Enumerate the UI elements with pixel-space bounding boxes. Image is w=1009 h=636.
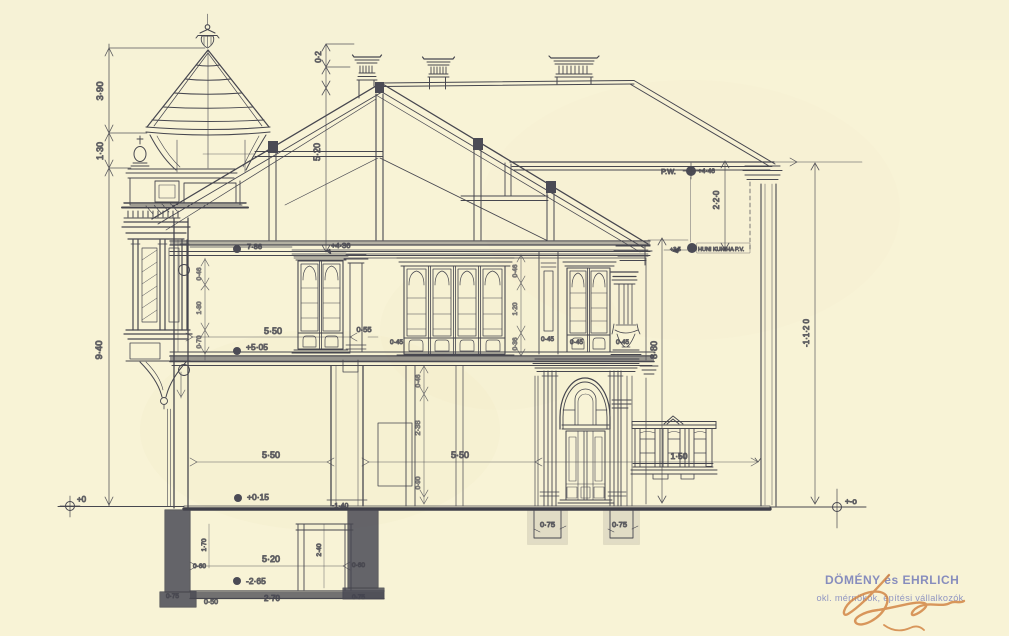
svg-text:2·40: 2·40 (316, 543, 323, 556)
svg-text:0·46: 0·46 (512, 264, 519, 277)
svg-text:+0·15: +0·15 (247, 492, 269, 502)
svg-text:0·75: 0·75 (612, 520, 627, 529)
svg-text:5·50: 5·50 (264, 326, 282, 336)
svg-text:2·38: 2·38 (413, 420, 422, 435)
svg-text:7·86: 7·86 (247, 242, 262, 251)
svg-text:2·70: 2·70 (264, 594, 281, 603)
svg-text:HUNI KUNIHA P.V.: HUNI KUNIHA P.V. (698, 247, 745, 253)
svg-text:0·75: 0·75 (166, 593, 179, 600)
svg-text:+4·36: +4·36 (331, 241, 350, 250)
svg-text:5·50: 5·50 (262, 450, 280, 460)
svg-text:0·75: 0·75 (540, 520, 555, 529)
svg-text:1·80: 1·80 (196, 301, 203, 314)
svg-text:+-o: +-o (845, 497, 857, 506)
svg-text:P.W.: P.W. (661, 167, 676, 176)
svg-text:3·90: 3·90 (95, 81, 106, 100)
svg-text:1·30: 1·30 (95, 142, 105, 160)
svg-text:1·20: 1·20 (512, 302, 519, 315)
svg-text:5·50: 5·50 (451, 450, 469, 460)
svg-text:0·60: 0·60 (352, 562, 365, 569)
svg-text:-1·40: -1·40 (332, 503, 348, 510)
svg-text:0·2: 0·2 (314, 51, 323, 63)
svg-text:0·50: 0·50 (204, 599, 218, 606)
svg-text:5·20: 5·20 (262, 554, 280, 564)
svg-text:-1·1·2 0: -1·1·2 0 (802, 318, 811, 347)
svg-text:5·20: 5·20 (312, 143, 322, 161)
svg-text:0·70: 0·70 (196, 335, 203, 348)
svg-text:-2·65: -2·65 (246, 576, 266, 586)
svg-text:0·75: 0·75 (352, 594, 365, 601)
svg-text:+5·05: +5·05 (246, 342, 268, 352)
svg-text:2·2·0: 2·2·0 (712, 190, 721, 209)
svg-text:0·46: 0·46 (196, 267, 203, 280)
svg-text:0·45: 0·45 (541, 336, 554, 343)
svg-text:+0: +0 (77, 495, 87, 504)
svg-text:0·60: 0·60 (193, 563, 206, 570)
svg-text:1·70: 1·70 (201, 538, 208, 551)
svg-text:0·45: 0·45 (390, 339, 403, 346)
svg-text:0·55: 0·55 (356, 325, 371, 334)
svg-text:0·46: 0·46 (415, 374, 422, 387)
svg-text:0·90: 0·90 (415, 476, 422, 489)
svg-text:+4·46: +4·46 (698, 168, 715, 175)
svg-text:DÖMÉNY és EHRLICH: DÖMÉNY és EHRLICH (825, 572, 959, 587)
svg-text:0·45: 0·45 (570, 339, 583, 346)
svg-text:1·50: 1·50 (670, 451, 687, 461)
svg-text:8·80: 8·80 (649, 341, 659, 359)
svg-text:9·40: 9·40 (94, 340, 105, 359)
svg-text:0·45: 0·45 (616, 339, 629, 346)
svg-text:okl. mérnökök, építési vállalk: okl. mérnökök, építési vállalkozók (816, 593, 963, 603)
svg-text:0·36: 0·36 (512, 337, 519, 350)
